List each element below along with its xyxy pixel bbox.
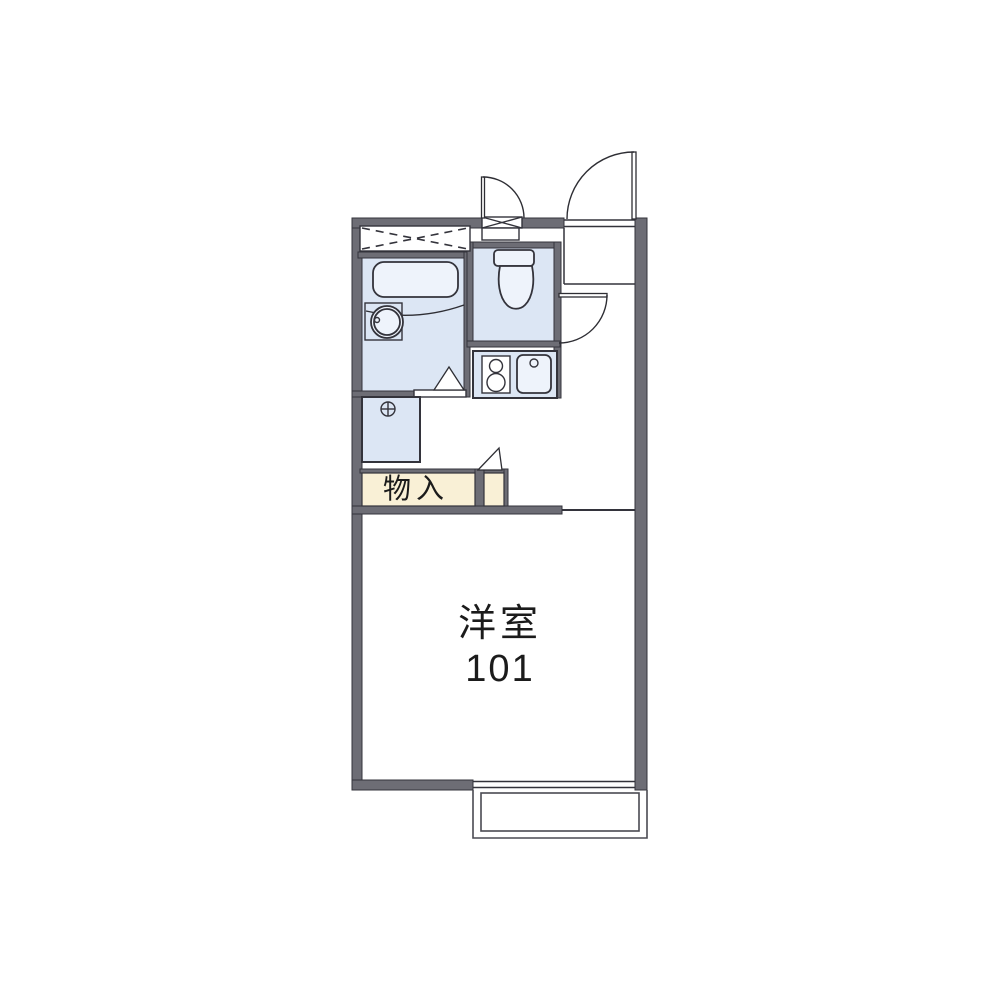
- entry-door-leaf: [632, 152, 636, 219]
- floorplan-svg: 物入 洋室 101: [0, 0, 1000, 1000]
- washing-machine-pan-icon: [362, 397, 420, 462]
- main-room: 洋室 101: [458, 603, 542, 690]
- bathtub-icon: [373, 262, 458, 297]
- kitchen: [473, 351, 557, 398]
- room-number-label: 101: [465, 648, 534, 690]
- closet-label: 物入: [383, 473, 449, 504]
- wall-toilet-left: [467, 242, 473, 347]
- toilet-bowl-icon: [499, 266, 534, 309]
- hall-door-leaf: [559, 294, 607, 298]
- hall-door-arc: [559, 295, 607, 343]
- entry-door: [567, 152, 636, 219]
- overhead-storage: [360, 226, 470, 251]
- kitchen-stove-icon: [482, 356, 510, 393]
- closet-side-box: [484, 473, 504, 506]
- toilet-door-leaf: [482, 177, 485, 218]
- balcony-inner: [481, 793, 639, 831]
- kitchen-sink-icon: [517, 355, 551, 393]
- wall-toilet-top: [467, 242, 561, 248]
- wall-toilet-bottom: [467, 341, 560, 347]
- closet-door-triangle-icon: [478, 448, 502, 470]
- wall-bottom: [352, 780, 473, 790]
- overhead-storage-box: [360, 226, 470, 251]
- washing-machine-pan: [362, 397, 420, 462]
- entry-door-arc: [567, 152, 634, 219]
- bathtub: [373, 262, 458, 297]
- bathroom-threshold: [414, 390, 466, 397]
- wall-hall-bottom: [352, 506, 562, 514]
- window-and-balcony: [473, 782, 647, 839]
- toilet-step: [482, 228, 519, 240]
- toilet-door-arc: [483, 177, 524, 218]
- wall-left: [352, 218, 362, 790]
- toilet-entry: [482, 177, 525, 240]
- wall-right: [635, 218, 647, 790]
- entry-hall: [564, 220, 635, 284]
- toilet-tank: [494, 250, 534, 266]
- floorplan-canvas: 物入 洋室 101: [0, 0, 1000, 1000]
- hall-door: [559, 294, 607, 344]
- room-name-label: 洋室: [458, 603, 542, 645]
- wall-bath-top: [358, 252, 470, 258]
